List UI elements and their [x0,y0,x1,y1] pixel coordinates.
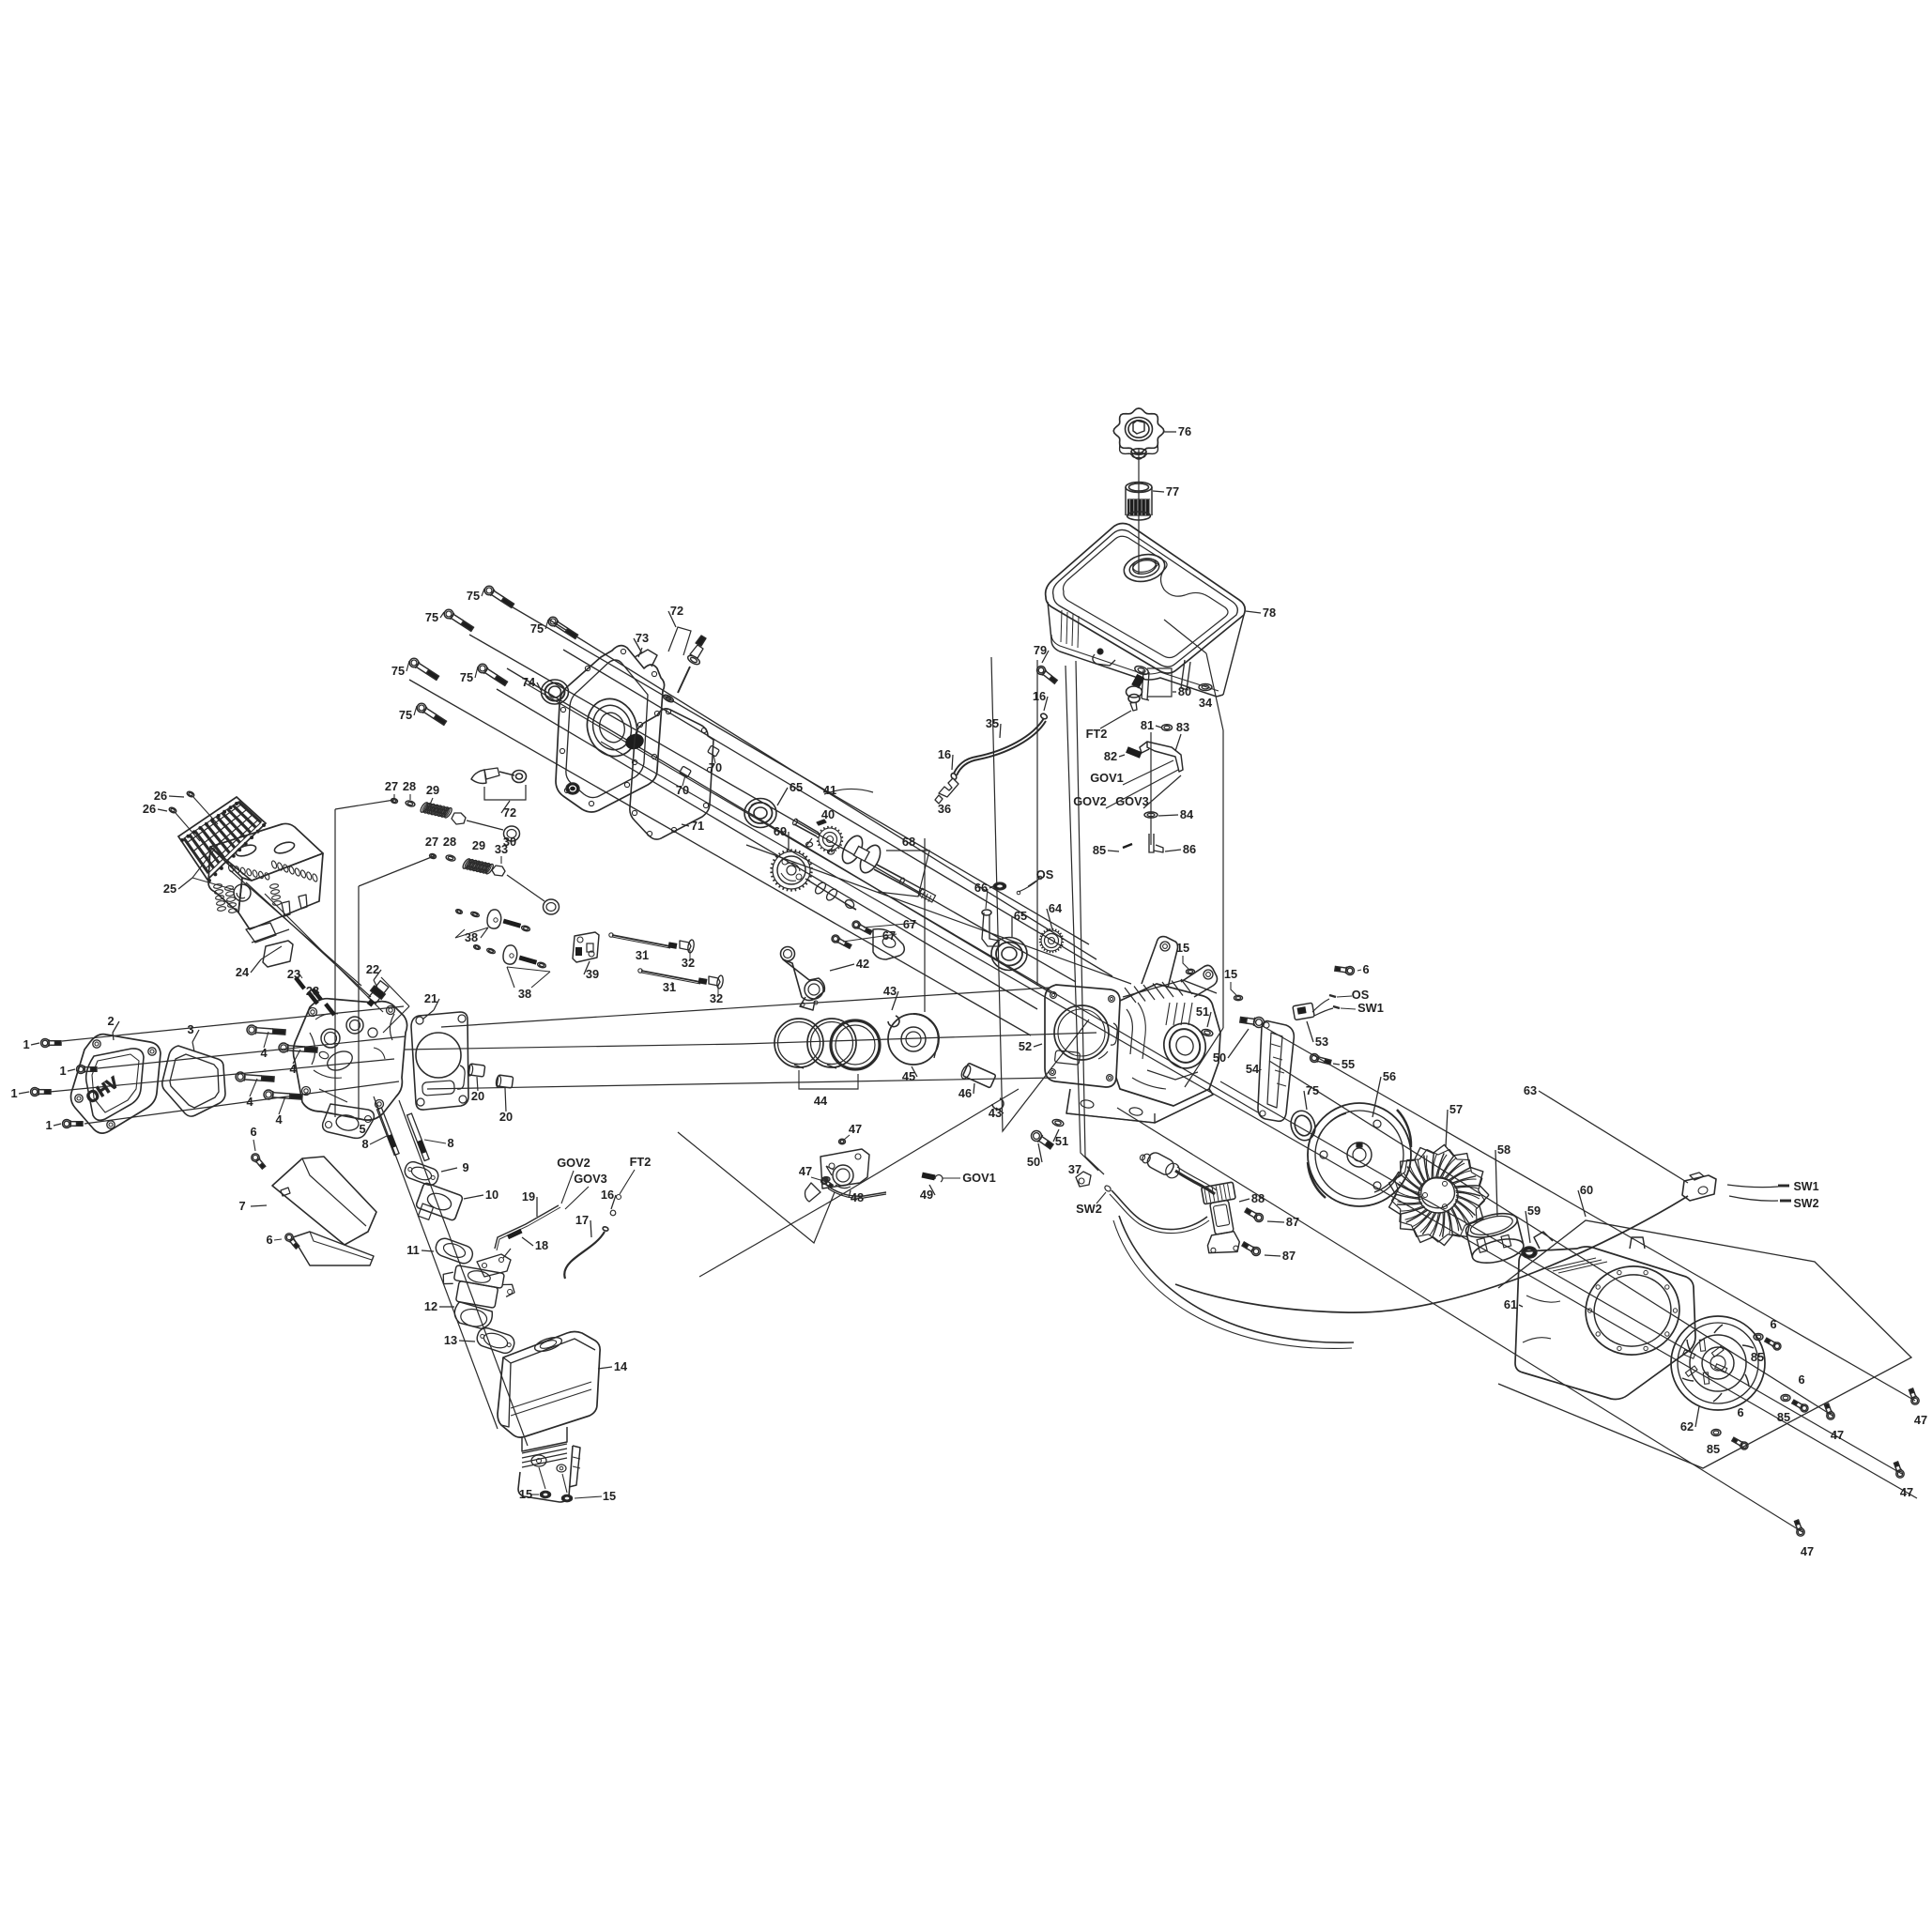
svg-text:11: 11 [406,1243,420,1257]
svg-text:6: 6 [250,1125,256,1139]
svg-text:75: 75 [460,670,473,684]
svg-text:49: 49 [920,1188,933,1202]
svg-text:45: 45 [902,1069,915,1083]
svg-text:42: 42 [856,957,869,971]
svg-text:27: 27 [385,779,398,793]
svg-text:38: 38 [518,987,531,1001]
svg-text:17: 17 [575,1213,589,1227]
svg-text:6: 6 [1362,962,1369,976]
svg-text:85: 85 [1093,843,1106,857]
svg-text:81: 81 [1141,718,1154,732]
svg-text:33: 33 [495,842,508,856]
svg-text:GOV1: GOV1 [962,1171,996,1185]
svg-text:4: 4 [246,1095,253,1109]
svg-text:47: 47 [1900,1485,1913,1499]
svg-text:85: 85 [1751,1350,1764,1364]
svg-text:87: 87 [1286,1215,1299,1229]
svg-text:55: 55 [1342,1057,1355,1071]
svg-text:41: 41 [823,783,836,797]
svg-text:1: 1 [23,1037,29,1051]
svg-text:20: 20 [499,1110,513,1124]
svg-text:60: 60 [1580,1183,1593,1197]
svg-text:62: 62 [1680,1419,1694,1434]
svg-text:4: 4 [260,1046,268,1060]
svg-text:51: 51 [1196,1004,1209,1019]
svg-text:OS: OS [1036,867,1054,882]
svg-text:47: 47 [1831,1428,1844,1442]
svg-text:65: 65 [790,780,803,794]
svg-text:85: 85 [1777,1410,1790,1424]
svg-text:47: 47 [1801,1544,1814,1558]
svg-text:75: 75 [1306,1083,1319,1097]
svg-text:66: 66 [974,881,988,895]
svg-text:13: 13 [444,1333,457,1347]
svg-text:7: 7 [238,1199,245,1213]
svg-text:65: 65 [1014,909,1027,923]
svg-text:54: 54 [1246,1062,1260,1076]
svg-text:78: 78 [1263,606,1276,620]
svg-text:15: 15 [519,1487,532,1501]
svg-text:37: 37 [1068,1162,1081,1176]
svg-text:79: 79 [1034,643,1047,657]
svg-text:SW1: SW1 [1793,1180,1818,1193]
svg-text:8: 8 [447,1136,453,1150]
svg-text:1: 1 [59,1064,66,1078]
svg-text:47: 47 [799,1164,812,1178]
svg-text:50: 50 [1213,1050,1226,1065]
svg-text:25: 25 [163,882,176,896]
svg-text:28: 28 [403,779,416,793]
svg-text:75: 75 [530,621,544,636]
svg-text:24: 24 [236,965,250,979]
svg-text:35: 35 [986,716,999,730]
svg-text:51: 51 [1055,1134,1068,1148]
svg-text:46: 46 [958,1086,972,1100]
svg-text:14: 14 [614,1359,628,1373]
svg-text:8: 8 [361,1137,368,1151]
svg-text:SW2: SW2 [1076,1202,1102,1216]
svg-text:GOV2: GOV2 [557,1156,590,1170]
svg-text:5: 5 [359,1122,365,1136]
svg-text:34: 34 [1199,696,1213,710]
svg-text:72: 72 [670,604,683,618]
svg-text:26: 26 [154,789,167,803]
svg-text:75: 75 [467,589,480,603]
svg-text:29: 29 [472,838,485,852]
svg-text:SW1: SW1 [1357,1001,1384,1015]
svg-text:88: 88 [1251,1191,1265,1205]
svg-text:20: 20 [471,1089,484,1103]
svg-text:75: 75 [399,708,412,722]
svg-text:86: 86 [1183,842,1196,856]
svg-text:85: 85 [1707,1442,1720,1456]
svg-text:28: 28 [443,835,456,849]
svg-text:1: 1 [10,1086,17,1100]
svg-text:59: 59 [1527,1204,1541,1218]
svg-text:6: 6 [1798,1372,1804,1387]
svg-text:1: 1 [45,1118,52,1132]
svg-text:31: 31 [636,948,649,962]
svg-text:47: 47 [849,1122,862,1136]
svg-text:16: 16 [1033,689,1046,703]
svg-text:29: 29 [426,783,439,797]
svg-text:75: 75 [425,610,438,624]
svg-text:53: 53 [1315,1035,1328,1049]
svg-text:58: 58 [1497,1142,1510,1157]
svg-text:FT2: FT2 [630,1155,652,1169]
svg-text:80: 80 [1178,684,1191,698]
svg-text:32: 32 [682,956,695,970]
svg-text:77: 77 [1166,484,1179,498]
svg-text:9: 9 [462,1160,468,1174]
svg-text:6: 6 [266,1233,272,1247]
svg-text:15: 15 [1224,967,1237,981]
svg-text:FT2: FT2 [1086,727,1108,741]
svg-text:52: 52 [1019,1039,1032,1053]
svg-text:16: 16 [938,747,951,761]
svg-text:4: 4 [275,1112,283,1127]
svg-text:68: 68 [902,835,915,849]
svg-text:15: 15 [1176,941,1189,955]
svg-text:GOV2: GOV2 [1073,794,1107,808]
svg-text:47: 47 [1914,1413,1927,1427]
svg-text:84: 84 [1180,807,1194,821]
svg-text:10: 10 [485,1188,498,1202]
svg-text:57: 57 [1449,1102,1463,1116]
svg-text:4: 4 [289,1062,297,1076]
svg-text:16: 16 [601,1188,614,1202]
svg-text:36: 36 [938,802,951,816]
svg-text:39: 39 [586,967,599,981]
svg-text:64: 64 [1049,901,1063,915]
svg-text:83: 83 [1176,720,1189,734]
svg-text:69: 69 [774,824,787,838]
svg-text:43: 43 [883,984,897,998]
svg-text:31: 31 [663,980,676,994]
svg-text:2: 2 [107,1014,114,1028]
svg-text:56: 56 [1383,1069,1396,1083]
svg-text:27: 27 [425,835,438,849]
svg-text:OS: OS [1352,988,1370,1002]
svg-text:GOV3: GOV3 [574,1172,607,1186]
svg-text:50: 50 [1027,1155,1040,1169]
svg-text:63: 63 [1524,1083,1537,1097]
svg-text:61: 61 [1504,1297,1517,1311]
svg-text:75: 75 [391,664,405,678]
svg-text:12: 12 [424,1299,437,1313]
svg-text:6: 6 [1737,1405,1743,1419]
svg-text:GOV3: GOV3 [1115,794,1149,808]
svg-text:19: 19 [522,1189,535,1204]
svg-text:74: 74 [522,675,536,689]
svg-text:32: 32 [710,991,723,1005]
svg-text:21: 21 [424,991,437,1005]
svg-text:23: 23 [287,967,300,981]
svg-text:26: 26 [143,802,156,816]
svg-text:48: 48 [851,1190,864,1204]
svg-text:87: 87 [1282,1249,1296,1263]
svg-text:GOV1: GOV1 [1090,771,1124,785]
svg-text:76: 76 [1178,424,1191,438]
svg-text:15: 15 [603,1489,616,1503]
svg-text:3: 3 [187,1022,193,1036]
svg-text:71: 71 [691,819,704,833]
svg-text:73: 73 [636,631,649,645]
svg-text:SW2: SW2 [1793,1197,1818,1210]
svg-text:18: 18 [535,1238,548,1252]
svg-text:44: 44 [814,1094,828,1108]
svg-text:6: 6 [1770,1317,1776,1331]
svg-text:82: 82 [1104,749,1117,763]
svg-text:43: 43 [989,1106,1002,1120]
